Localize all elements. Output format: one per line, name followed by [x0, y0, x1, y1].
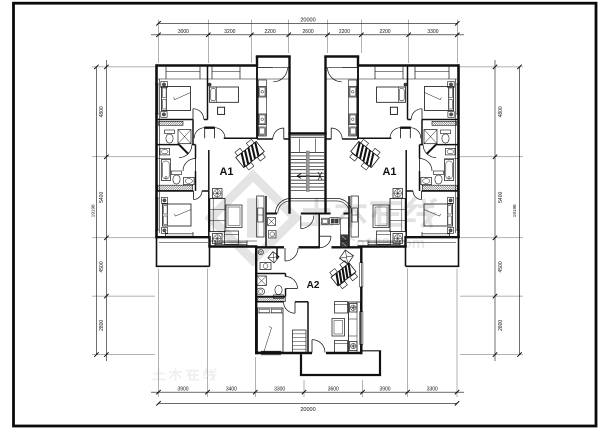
- svg-text:3200: 3200: [224, 29, 235, 35]
- svg-text:2600: 2600: [303, 29, 314, 35]
- svg-text:2200: 2200: [339, 29, 350, 35]
- svg-text:A2: A2: [307, 280, 320, 291]
- svg-text:2800: 2800: [498, 320, 504, 331]
- svg-text:3900: 3900: [177, 386, 188, 392]
- svg-text:20000: 20000: [300, 17, 315, 23]
- svg-text:4500: 4500: [99, 261, 105, 272]
- svg-text:3600: 3600: [328, 386, 339, 392]
- svg-text:19198: 19198: [512, 204, 517, 217]
- svg-text:4800: 4800: [99, 106, 105, 117]
- svg-text:5400: 5400: [498, 192, 504, 203]
- svg-text:3300: 3300: [274, 386, 285, 392]
- svg-text:3000: 3000: [178, 29, 189, 35]
- svg-text:A1: A1: [382, 166, 396, 178]
- svg-text:2800: 2800: [99, 320, 105, 331]
- svg-text:3300: 3300: [427, 29, 438, 35]
- svg-text:4500: 4500: [498, 261, 504, 272]
- svg-text:2200: 2200: [379, 29, 390, 35]
- svg-text:20000: 20000: [300, 407, 315, 413]
- svg-text:5400: 5400: [99, 192, 105, 203]
- svg-text:3400: 3400: [226, 386, 237, 392]
- svg-text:3300: 3300: [427, 386, 438, 392]
- svg-text:3900: 3900: [379, 386, 390, 392]
- svg-text:19198: 19198: [90, 204, 95, 217]
- svg-text:A1: A1: [219, 166, 233, 178]
- svg-text:4800: 4800: [498, 106, 504, 117]
- svg-text:2200: 2200: [264, 29, 275, 35]
